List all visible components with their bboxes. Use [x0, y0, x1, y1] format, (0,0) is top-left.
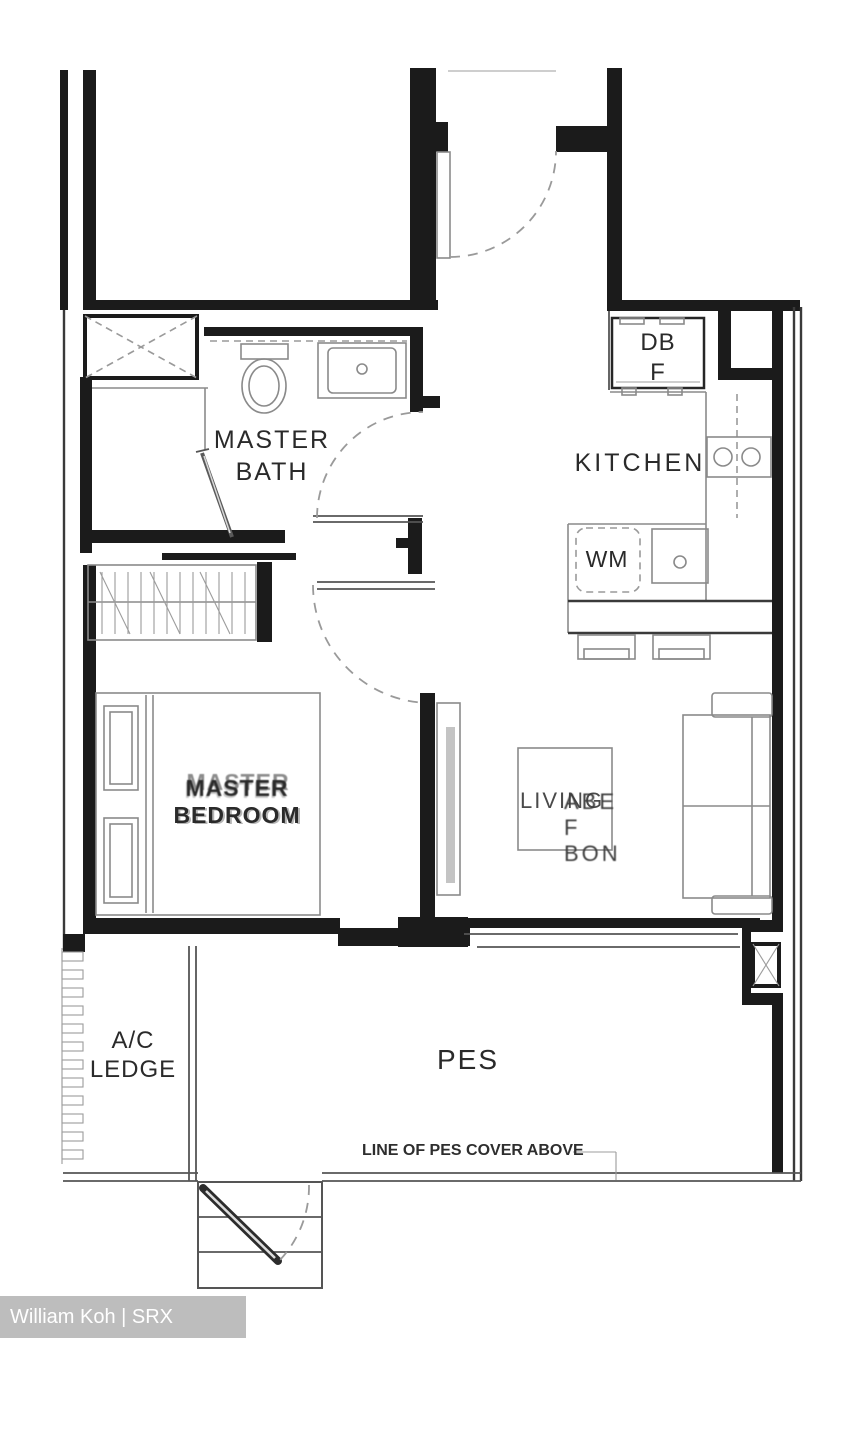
watermark: William Koh | SRX PROPERTY — [0, 1296, 246, 1338]
floor-plan-drawing — [0, 0, 867, 1440]
bedroom-door — [313, 582, 435, 703]
bar-stools — [578, 635, 710, 659]
shaft-x-box — [85, 316, 197, 378]
pes-label: PES — [413, 1044, 523, 1076]
pes-boundary — [63, 1173, 801, 1181]
pes-cover-note: LINE OF PES COVER ABOVE — [362, 1142, 584, 1160]
floor-plan: MASTER BATH KITCHEN DB F WM MASTER BEDRO… — [0, 0, 867, 1440]
ac-ledge-label: A/C LEDGE — [73, 1026, 193, 1084]
ac-ledge-label-line2: LEDGE — [73, 1055, 193, 1084]
kitchen-counter-bottom — [568, 524, 772, 633]
master-bath-label: MASTER BATH — [177, 424, 367, 488]
tv-console — [437, 703, 460, 895]
sofa — [683, 693, 772, 914]
db-label: DB — [613, 328, 703, 358]
kitchen-sink — [652, 529, 708, 583]
bath-sliding-door — [162, 553, 296, 560]
living-label-overlay: ABE F BON — [564, 789, 621, 867]
walls-outer — [60, 68, 801, 1181]
wm-label: WM — [570, 546, 644, 573]
ac-ledge-label-line1: A/C — [73, 1026, 193, 1055]
toilet — [241, 344, 288, 413]
db-f-label: DB F — [613, 328, 703, 388]
entry-door — [437, 151, 556, 258]
column-x — [742, 920, 783, 1173]
kitchen-label: KITCHEN — [545, 447, 735, 479]
bedroom-label: MASTER BEDROOM — [137, 775, 337, 829]
master-bath-label-line2: BATH — [177, 456, 367, 488]
wardrobe-wall-stub — [257, 562, 272, 642]
bedroom-label-line1: MASTER — [137, 775, 337, 802]
f-label: F — [613, 358, 703, 388]
living-sliding-door — [464, 934, 740, 947]
master-bath-label-line1: MASTER — [177, 424, 367, 456]
living-label: LIVING ABE F BON — [520, 788, 604, 814]
divider-wall — [398, 693, 468, 947]
kitchen-counter-right — [706, 392, 737, 600]
vanity-sink — [318, 343, 406, 398]
bedroom-label-line2: BEDROOM — [137, 802, 337, 829]
wardrobe — [88, 565, 256, 640]
